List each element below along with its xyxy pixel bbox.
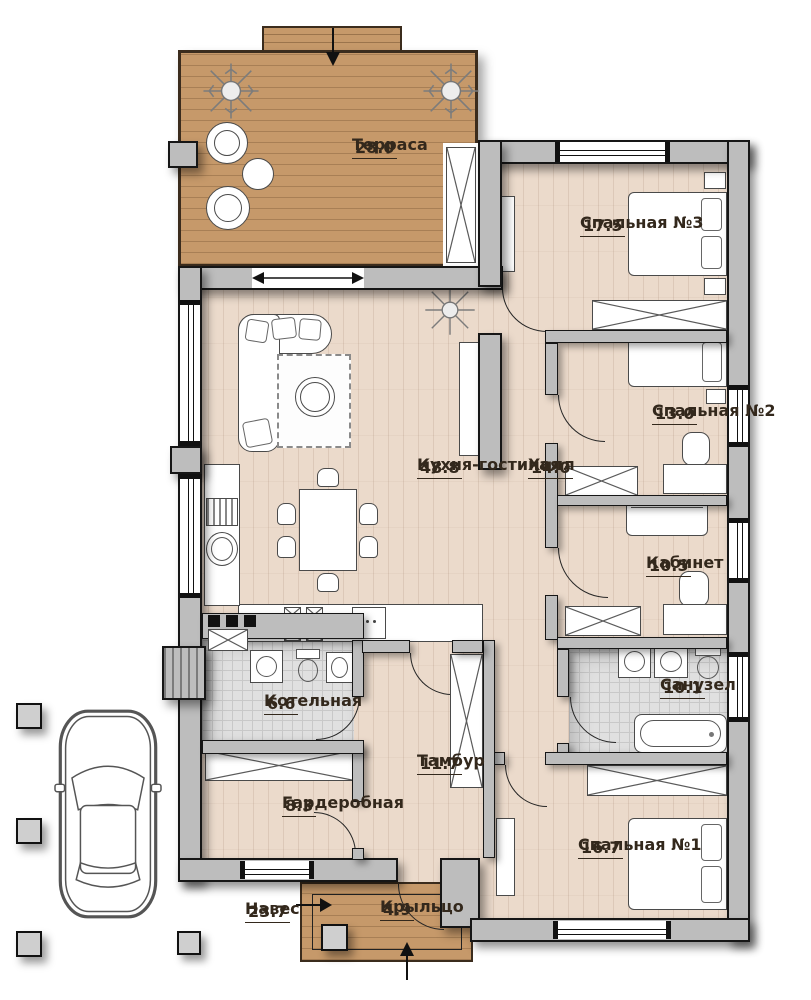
window <box>180 474 200 598</box>
wall <box>557 495 727 506</box>
x-hatch-icon <box>588 766 726 795</box>
car-top-view <box>54 708 162 920</box>
wall-pier <box>170 446 202 474</box>
window <box>240 861 314 879</box>
x-hatch-icon <box>447 148 475 262</box>
dining-chair <box>359 536 378 558</box>
nightstand <box>704 278 726 295</box>
washing-machine <box>250 650 283 683</box>
wall <box>545 330 727 343</box>
chimney-hatch <box>208 629 248 651</box>
wardrobe <box>205 750 353 781</box>
wardrobe <box>587 765 727 796</box>
wall <box>362 640 410 653</box>
wall <box>557 649 569 697</box>
closet <box>446 147 476 263</box>
x-hatch-icon <box>593 301 726 329</box>
sink <box>326 652 353 683</box>
plant-icon <box>422 62 480 120</box>
floor-plan: Терраса 28.0 Спальная №3 17.5 Кухня-гост… <box>0 0 811 1000</box>
wall <box>483 640 495 858</box>
chimney-flue <box>162 646 206 700</box>
window <box>555 142 670 162</box>
bathroom-sink <box>654 645 688 678</box>
round-sink <box>206 532 238 566</box>
dining-chair <box>317 573 339 592</box>
entrance-arrow-icon <box>296 897 332 913</box>
plant-icon <box>424 284 476 336</box>
wall <box>545 343 558 395</box>
drying-rack <box>206 498 238 526</box>
nightstand <box>704 172 726 189</box>
toilet <box>294 648 322 684</box>
bed-pillow <box>701 824 722 861</box>
entrance-arrow-icon <box>398 942 416 980</box>
x-hatch-icon <box>206 751 352 780</box>
entrance-arrow-icon <box>324 28 342 66</box>
vent-block <box>208 615 220 627</box>
wall <box>478 140 502 287</box>
window <box>553 921 671 939</box>
dining-table <box>299 489 357 571</box>
desk <box>663 464 727 494</box>
x-hatch-icon <box>209 630 247 650</box>
dining-chair <box>359 503 378 525</box>
dining-chair <box>317 468 339 487</box>
wall <box>478 333 502 470</box>
bed-pillow <box>701 866 722 903</box>
window <box>180 300 200 446</box>
terrace-table <box>242 158 274 190</box>
dining-chair <box>277 503 296 525</box>
wall <box>545 752 727 765</box>
canopy-post <box>177 931 201 955</box>
wall <box>352 848 364 860</box>
terrace-chair-seat <box>214 130 240 156</box>
sliding-door-arrow-icon <box>252 268 364 288</box>
sofa-pillow <box>298 318 322 341</box>
canopy-post <box>16 818 42 844</box>
washing-machine <box>618 645 651 678</box>
wardrobe <box>592 300 727 330</box>
window <box>729 518 748 583</box>
cabinet <box>496 818 515 896</box>
canopy-post <box>16 931 42 957</box>
wall <box>202 740 364 754</box>
terrace-chair-seat <box>214 194 242 222</box>
sofa-pillow <box>271 317 297 341</box>
desk-chair <box>682 432 710 466</box>
sofa-pillow <box>242 418 273 449</box>
x-hatch-icon <box>566 467 637 495</box>
wall <box>452 640 483 653</box>
canopy-post <box>16 703 42 729</box>
wardrobe <box>565 466 638 496</box>
porch-post <box>321 924 348 951</box>
bed-pillow <box>702 342 722 382</box>
vent-block <box>244 615 256 627</box>
wardrobe <box>565 606 641 636</box>
wall <box>557 637 727 649</box>
dining-chair <box>277 536 296 558</box>
coffee-table-top <box>300 382 330 412</box>
sofa-pillow <box>244 318 269 343</box>
x-hatch-icon <box>566 607 640 635</box>
bathtub <box>634 714 727 753</box>
wall <box>545 595 558 640</box>
desk <box>663 604 727 635</box>
bed-pillow <box>701 198 722 231</box>
bed-pillow <box>701 236 722 269</box>
sliding-door <box>252 268 364 288</box>
plant-icon <box>202 62 260 120</box>
vent-block <box>226 615 238 627</box>
wall-pier <box>168 141 198 168</box>
